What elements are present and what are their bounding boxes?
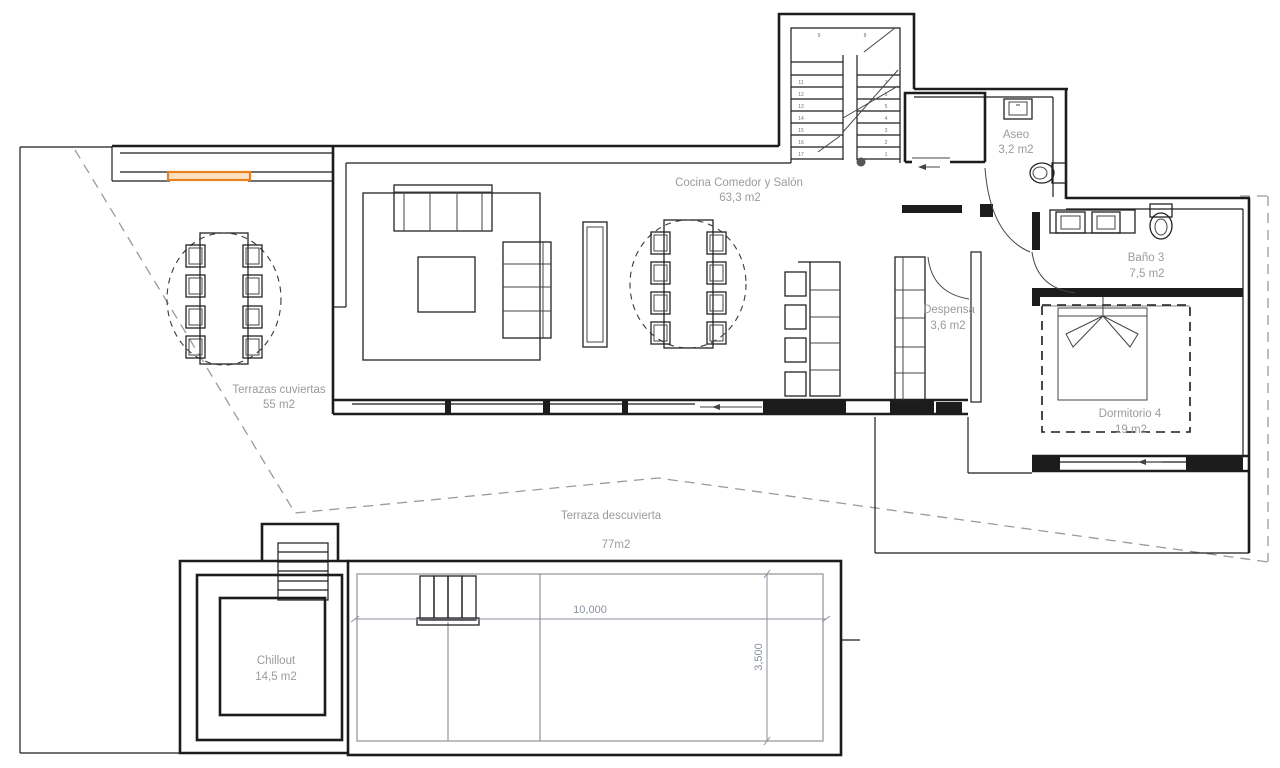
- tread-number: 4: [885, 116, 888, 122]
- rug: [363, 193, 540, 360]
- living-room: Cocina Comedor y Salón 63,3 m2: [363, 177, 840, 396]
- tread-number: 17: [798, 152, 804, 158]
- south-wall-solid: [763, 400, 846, 414]
- room-area-bano3: 7,5 m2: [1129, 268, 1164, 280]
- door-arrow-storage: [918, 164, 940, 170]
- south-wall-solid: [890, 401, 934, 414]
- aseo-room: Aseo 3,2 m2: [985, 99, 1066, 252]
- dormitorio4-room: Dormitorio 4 19 m2: [1042, 297, 1190, 436]
- stair-pole: [857, 158, 866, 167]
- bano3-sink-basin: [1097, 216, 1115, 229]
- house-walls: [333, 14, 1250, 553]
- room-area-dorm4: 19 m2: [1115, 424, 1147, 436]
- room-label-terrazas: Terrazas cuviertas: [232, 384, 326, 396]
- dorm-window-pier: [1186, 456, 1243, 471]
- bano3-sink: [1092, 212, 1120, 233]
- tread-number: 13: [798, 104, 804, 110]
- dim-text-length: 10,000: [573, 604, 607, 616]
- room-label-dorm4: Dormitorio 4: [1099, 408, 1162, 420]
- despensa-east-wall: [971, 252, 981, 402]
- tread-number: 9: [818, 33, 821, 39]
- bano3-dorm-divider: [1032, 288, 1243, 297]
- room-label-bano3: Baño 3: [1128, 252, 1164, 264]
- plot-boundary: [20, 147, 1268, 753]
- kitchen-cabinet: [785, 262, 840, 396]
- entry-wall-pier: [980, 204, 993, 217]
- room-area-descuvierta: 77m2: [602, 539, 631, 551]
- dimension-length: 10,000: [351, 604, 830, 622]
- dining-table-interior: [630, 220, 746, 348]
- bano3-toilet-inner: [1155, 219, 1167, 235]
- tv-unit: [583, 222, 607, 347]
- south-wall-solid: [936, 402, 962, 413]
- chillout-block: Chillout 14,5 m2: [180, 524, 348, 753]
- room-area-cocina: 63,3 m2: [719, 192, 761, 204]
- tread-number: 2: [885, 140, 888, 146]
- tread-number: 5: [885, 104, 888, 110]
- room-area-chillout: 14,5 m2: [255, 671, 297, 683]
- door-arrow-kitchen: [700, 404, 762, 410]
- tread-number: 14: [798, 116, 804, 122]
- tread-number: 1: [885, 152, 888, 158]
- room-area-despensa: 3,6 m2: [930, 320, 965, 332]
- boundary-dashed-line: [75, 150, 1268, 562]
- tread-number: 8: [864, 33, 867, 39]
- storage-room: [902, 93, 1040, 250]
- door-arrow-dormitorio: [1138, 459, 1162, 465]
- bano3-toilet-cistern: [1150, 204, 1172, 217]
- tread-number: 15: [798, 128, 804, 134]
- room-label-descuvierta: Terraza descuvierta: [561, 510, 662, 522]
- covered-terrace: Terrazas cuviertas 55 m2: [167, 233, 326, 411]
- room-area-aseo: 3,2 m2: [998, 144, 1033, 156]
- chaise-sofa: [503, 242, 551, 338]
- room-label-despensa: Despensa: [923, 304, 975, 316]
- tread-number: 6: [885, 92, 888, 98]
- stair-section-line: [864, 28, 895, 52]
- pool: 10,000 3,500: [348, 561, 860, 755]
- terrace-wall-orange: [112, 146, 333, 181]
- orange-window-highlight: [168, 172, 250, 180]
- storage-walls: [905, 93, 985, 162]
- divider-return: [1032, 288, 1040, 306]
- dining-table-terrace: [167, 233, 281, 365]
- tread-number: 16: [798, 140, 804, 146]
- bano3-sink: [1056, 212, 1085, 233]
- coffee-table: [418, 257, 475, 312]
- tread-number: 7: [885, 80, 888, 86]
- bano3-door-arc: [1032, 252, 1075, 293]
- entry-wall-post: [1032, 212, 1040, 250]
- aseo-toilet-inner: [1033, 167, 1047, 179]
- room-area-terrazas: 55 m2: [263, 399, 295, 411]
- tread-number: 11: [798, 80, 803, 86]
- dimension-width: 3,500: [753, 570, 770, 745]
- sofa: [394, 185, 492, 231]
- entry-wall-segment: [902, 205, 962, 213]
- aseo-sink-basin: [1009, 102, 1027, 115]
- bano3-room: Baño 3 7,5 m2: [1032, 204, 1172, 293]
- stair-treads-right: [857, 75, 900, 159]
- bed: [1058, 308, 1147, 400]
- room-label-cocina: Cocina Comedor y Salón: [675, 177, 803, 189]
- floor-plan: 11 12 13 14 15 16 17 7 6 5 4 3 2 1 9 8: [0, 0, 1280, 768]
- room-label-aseo: Aseo: [1003, 129, 1029, 141]
- dim-text-width: 3,500: [753, 643, 765, 671]
- chillout-stairs: [278, 543, 328, 600]
- mullion: [445, 401, 451, 413]
- mullion: [622, 401, 628, 413]
- bed-pillows: [1066, 316, 1138, 347]
- mullion: [543, 401, 550, 413]
- room-label-chillout: Chillout: [257, 655, 296, 667]
- despensa-door-arc: [928, 257, 969, 299]
- pool-steps: [417, 576, 479, 625]
- open-terrace: Terraza descuvierta 77m2 Chillout 14,5 m…: [180, 510, 860, 755]
- tread-number: 12: [798, 92, 804, 98]
- despensa-room: Despensa 3,6 m2: [895, 252, 981, 402]
- tread-number: 3: [885, 128, 888, 134]
- staircase: 11 12 13 14 15 16 17 7 6 5 4 3 2 1 9 8: [791, 28, 900, 167]
- despensa-shelving: [895, 257, 925, 400]
- dorm-window-pier: [1032, 456, 1060, 471]
- stair-section-line: [818, 136, 840, 152]
- stair-section-line: [843, 86, 898, 118]
- bano3-sink-basin: [1061, 216, 1080, 229]
- aseo-toilet-bowl: [1030, 163, 1054, 183]
